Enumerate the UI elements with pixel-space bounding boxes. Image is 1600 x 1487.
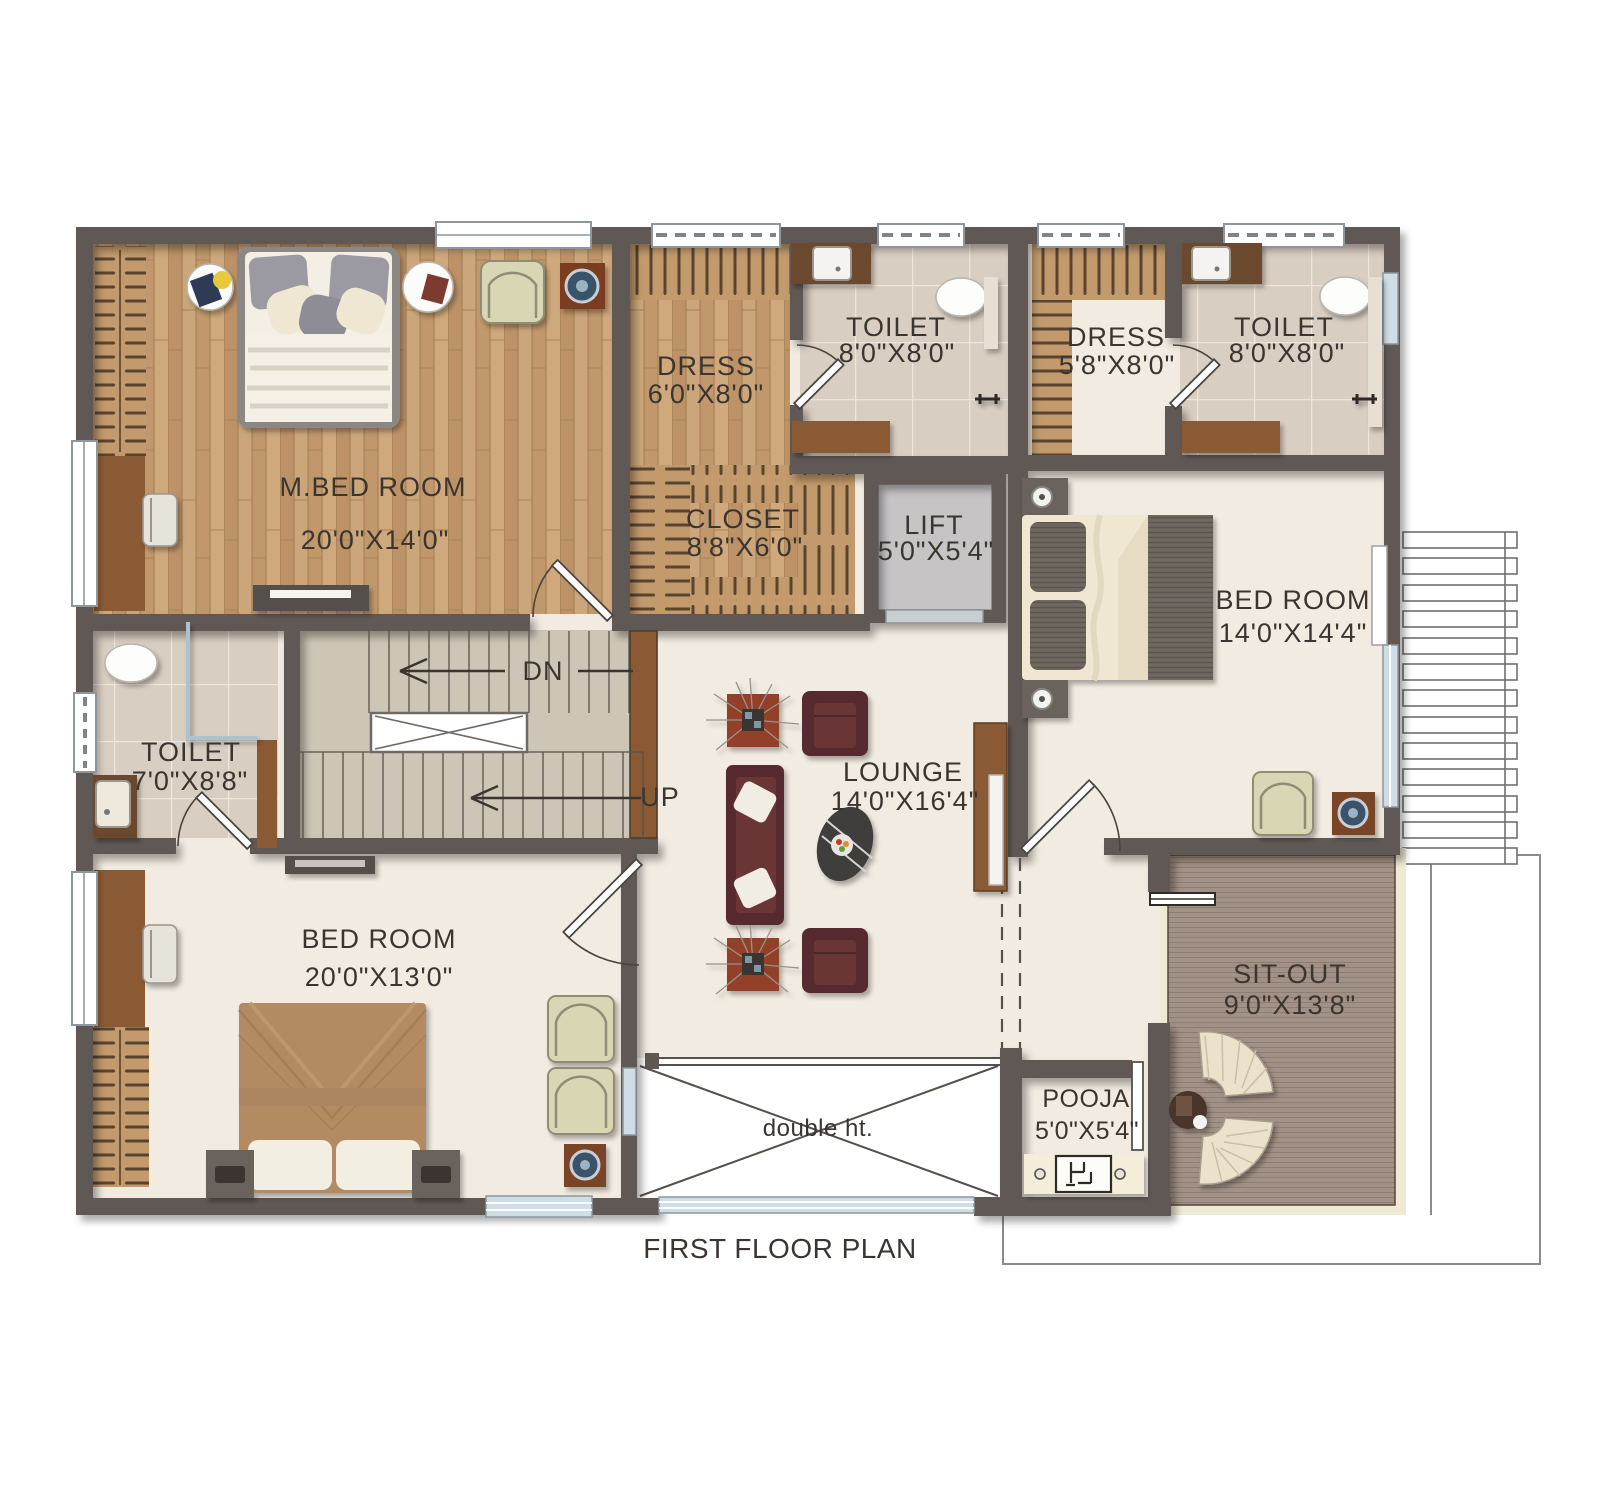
svg-text:CLOSET: CLOSET <box>686 504 800 534</box>
svg-text:14'0"X16'4": 14'0"X16'4" <box>831 786 980 816</box>
svg-text:9'0"X13'8": 9'0"X13'8" <box>1224 990 1357 1020</box>
svg-text:5'8"X8'0": 5'8"X8'0" <box>1059 350 1176 380</box>
svg-text:6'0"X8'0": 6'0"X8'0" <box>648 379 765 409</box>
svg-text:8'0"X8'0": 8'0"X8'0" <box>1229 338 1346 368</box>
svg-text:UP: UP <box>640 782 680 812</box>
svg-text:20'0"X14'0": 20'0"X14'0" <box>301 525 450 555</box>
svg-text:BED ROOM: BED ROOM <box>301 924 456 954</box>
svg-text:SIT-OUT: SIT-OUT <box>1233 959 1347 989</box>
svg-text:double ht.: double ht. <box>763 1115 873 1142</box>
svg-text:5'0"X5'4": 5'0"X5'4" <box>878 536 995 566</box>
svg-text:FIRST FLOOR PLAN: FIRST FLOOR PLAN <box>643 1233 917 1264</box>
svg-text:20'0"X13'0": 20'0"X13'0" <box>305 962 454 992</box>
svg-text:5'0"X5'4": 5'0"X5'4" <box>1035 1117 1139 1145</box>
svg-text:LOUNGE: LOUNGE <box>843 757 963 787</box>
svg-text:8'0"X8'0": 8'0"X8'0" <box>839 338 956 368</box>
svg-text:8'8"X6'0": 8'8"X6'0" <box>687 532 804 562</box>
svg-text:POOJA: POOJA <box>1042 1085 1129 1113</box>
svg-text:7'0"X8'8": 7'0"X8'8" <box>132 766 249 796</box>
svg-text:DN: DN <box>523 656 564 686</box>
svg-text:TOILET: TOILET <box>141 737 241 767</box>
svg-text:14'0"X14'4": 14'0"X14'4" <box>1219 618 1368 648</box>
svg-text:DRESS: DRESS <box>1067 322 1165 352</box>
svg-text:M.BED ROOM: M.BED ROOM <box>279 472 466 502</box>
svg-text:DRESS: DRESS <box>657 351 755 381</box>
svg-text:BED ROOM: BED ROOM <box>1215 585 1370 615</box>
